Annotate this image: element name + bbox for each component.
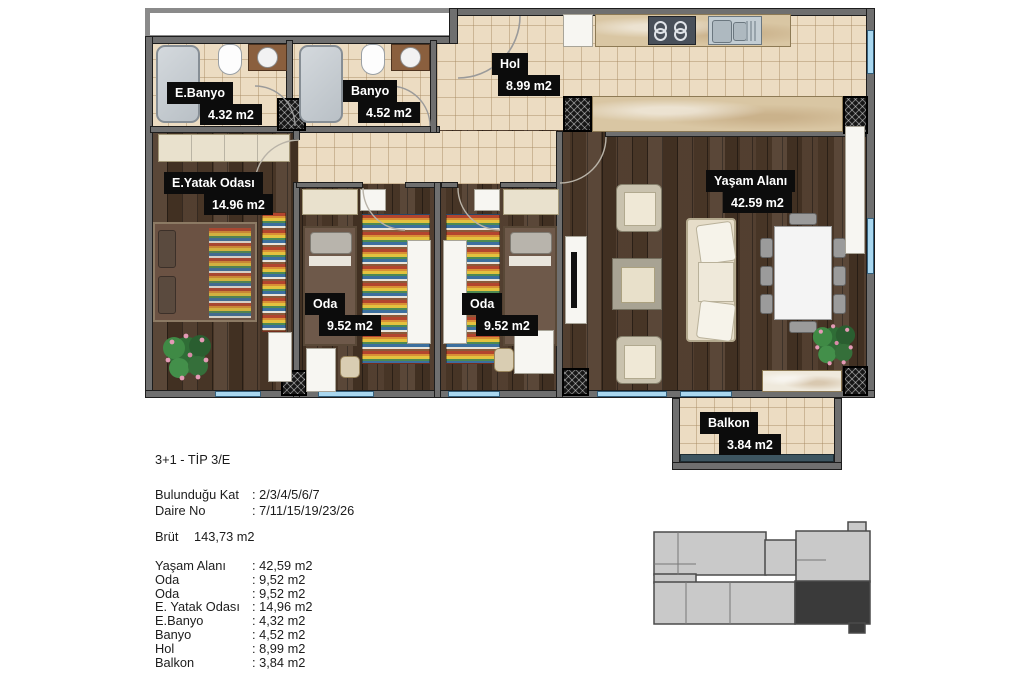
room-area: 9.52 m2 bbox=[319, 315, 381, 337]
room-label-balkon: Balkon 3.84 m2 bbox=[700, 412, 781, 455]
floor-plan-page: E.Banyo 4.32 m2 Banyo 4.52 m2 Hol 8.99 m… bbox=[0, 0, 1024, 700]
room-area: 4.52 m2 bbox=[358, 102, 420, 124]
room-area: 9.52 m2 bbox=[476, 315, 538, 337]
room-label-banyo: Banyo 4.52 m2 bbox=[343, 80, 420, 123]
room-name: E.Banyo bbox=[167, 82, 233, 104]
room-area: 42.59 m2 bbox=[723, 192, 792, 214]
room-area: 3.84 m2 bbox=[719, 434, 781, 456]
room-name: Hol bbox=[492, 53, 528, 75]
room-label-hol: Hol 8.99 m2 bbox=[492, 53, 560, 96]
room-label-yasam: Yaşam Alanı 42.59 m2 bbox=[706, 170, 795, 213]
room-name: Oda bbox=[305, 293, 345, 315]
room-area: 4.32 m2 bbox=[200, 104, 262, 126]
room-label-eyatak: E.Yatak Odası 14.96 m2 bbox=[164, 172, 273, 215]
room-name: Banyo bbox=[343, 80, 397, 102]
room-label-ebanyo: E.Banyo 4.32 m2 bbox=[167, 82, 262, 125]
room-name: Balkon bbox=[700, 412, 758, 434]
door-arcs bbox=[0, 0, 1024, 700]
room-area: 8.99 m2 bbox=[498, 75, 560, 97]
room-label-oda1: Oda 9.52 m2 bbox=[305, 293, 381, 336]
room-name: Oda bbox=[462, 293, 502, 315]
room-name: E.Yatak Odası bbox=[164, 172, 263, 194]
room-name: Yaşam Alanı bbox=[706, 170, 795, 192]
room-label-oda2: Oda 9.52 m2 bbox=[462, 293, 538, 336]
room-area: 14.96 m2 bbox=[204, 194, 273, 216]
